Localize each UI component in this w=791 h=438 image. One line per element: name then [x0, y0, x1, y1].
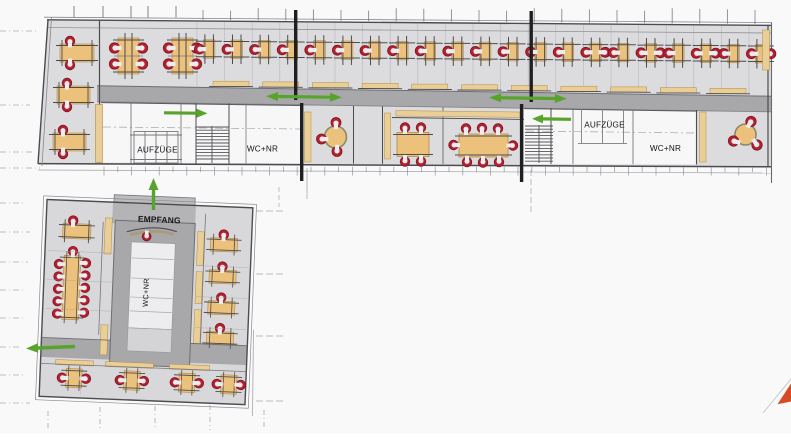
svg-text:WC+NR: WC+NR [247, 145, 278, 154]
svg-text:AUFZÜGE: AUFZÜGE [137, 145, 178, 155]
svg-text:AUFZÜGE: AUFZÜGE [584, 120, 625, 130]
svg-text:WC+NR: WC+NR [141, 278, 151, 307]
svg-text:WC+NR: WC+NR [650, 144, 681, 153]
svg-text:EMPFANG: EMPFANG [138, 214, 181, 226]
